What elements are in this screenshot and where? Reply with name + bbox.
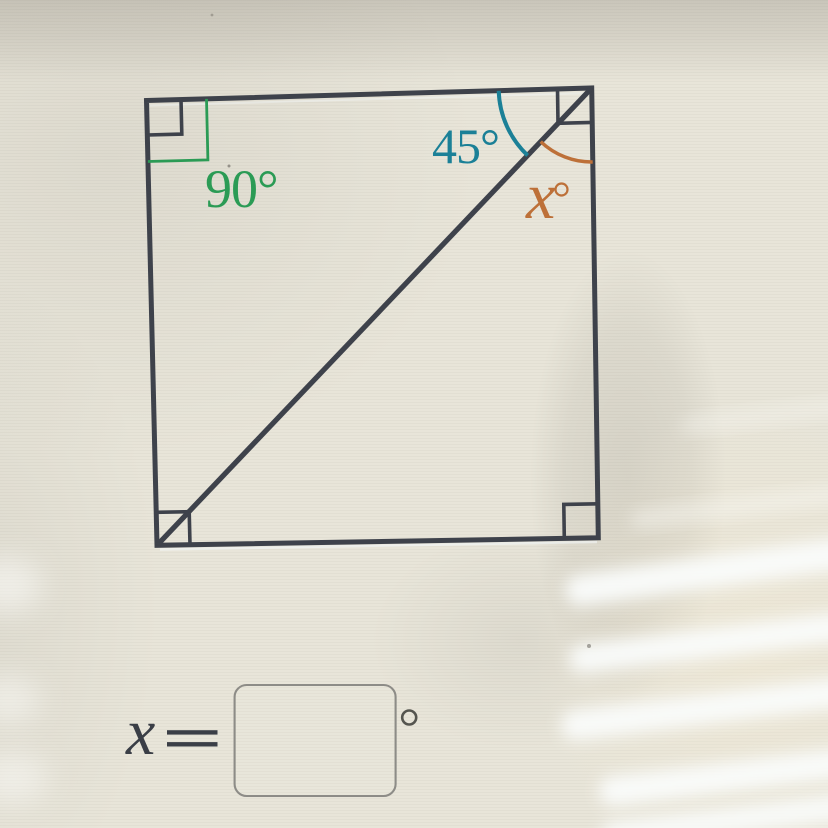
svg-text:45°: 45° (432, 118, 499, 174)
svg-text:x: x (125, 696, 155, 769)
svg-text:90°: 90° (205, 159, 278, 219)
svg-text:x: x (525, 160, 555, 233)
